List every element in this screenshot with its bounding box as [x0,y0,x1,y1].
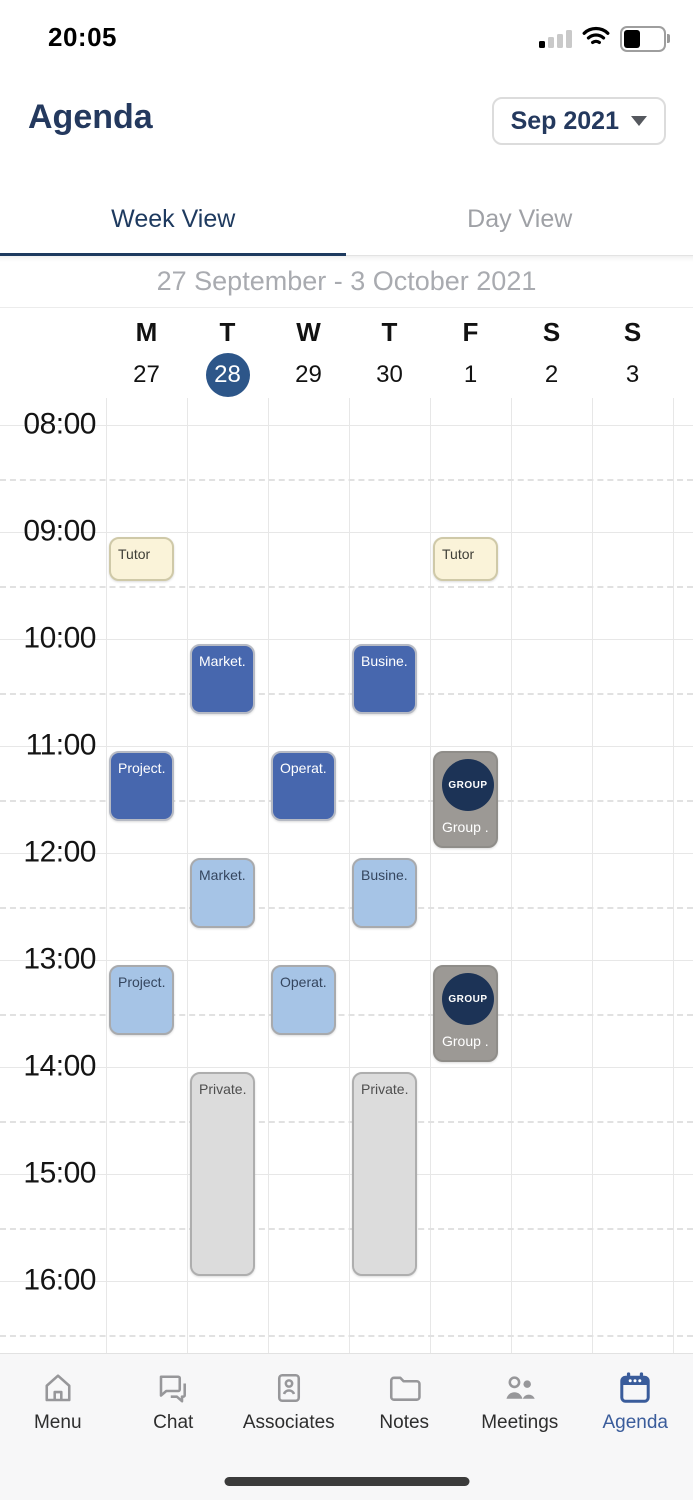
grid-vertical-line [592,398,593,1353]
grid-vertical-line [349,398,350,1353]
nav-label: Meetings [481,1412,558,1434]
grid-hour-line [0,532,693,533]
grid-hour-line [0,960,693,961]
event-label: Operat... [280,760,327,777]
day-letter: W [268,315,349,349]
day-letter: S [592,315,673,349]
event-label: Busine... [361,867,408,884]
battery-icon [620,26,666,52]
event-label: Market... [199,867,246,884]
day-column-header[interactable]: F1 [430,307,511,398]
nav-item-notes[interactable]: Notes [347,1354,463,1435]
day-letter: M [106,315,187,349]
page-title: Agenda [28,98,153,137]
time-label: 15:00 [0,1156,96,1190]
event-label: Tutor [118,546,165,563]
status-bar: 20:05 [0,0,693,60]
nav-label: Agenda [602,1412,668,1434]
grid-halfhour-line [0,693,693,695]
folder-icon [386,1370,422,1406]
event-card[interactable]: GROUPGroup ... [433,965,498,1062]
nav-item-associates[interactable]: Associates [231,1354,347,1435]
day-column-header[interactable]: S2 [511,307,592,398]
day-date: 30 [368,353,412,397]
grid-halfhour-line [0,479,693,481]
tab-week-view[interactable]: Week View [0,186,347,255]
grid-hour-line [0,639,693,640]
nav-item-meetings[interactable]: Meetings [462,1354,578,1435]
nav-label: Associates [243,1412,335,1434]
nav-item-menu[interactable]: Menu [0,1354,116,1435]
event-label: Private... [361,1081,408,1098]
chat-icon [155,1370,191,1406]
grid-halfhour-line [0,586,693,588]
day-letter: T [349,315,430,349]
grid-vertical-line [268,398,269,1353]
event-label: Operat... [280,974,327,991]
grid-vertical-line [187,398,188,1353]
home-icon [40,1370,76,1406]
status-icons [539,26,666,52]
day-letter: S [511,315,592,349]
day-column-header[interactable]: T30 [349,307,430,398]
grid-halfhour-line [0,1228,693,1230]
event-label: Private... [199,1081,246,1098]
tab-day-view[interactable]: Day View [347,186,693,255]
event-label: Project... [118,974,165,991]
nav-item-chat[interactable]: Chat [116,1354,232,1435]
time-label: 08:00 [0,407,96,441]
day-column-header[interactable]: T28 [187,307,268,398]
event-card[interactable]: Project... [109,751,174,821]
group-badge-icon: GROUP [442,759,494,811]
event-card[interactable]: Tutor [109,537,174,581]
grid-hour-line [0,1067,693,1068]
week-range-label: 27 September - 3 October 2021 [0,256,693,308]
event-card[interactable]: Private... [190,1072,255,1276]
grid-hour-line [0,1174,693,1175]
grid-hour-line [0,1281,693,1282]
event-label: Group ... [442,1033,489,1050]
grid-hour-line [0,425,693,426]
day-date: 2 [530,353,574,397]
grid-halfhour-line [0,1335,693,1337]
day-date: 27 [125,353,169,397]
month-selector-button[interactable]: Sep 2021 [492,97,666,145]
event-card[interactable]: Tutor [433,537,498,581]
day-header: M27T28W29T30F1S2S3 [0,307,693,398]
nav-label: Chat [153,1412,193,1434]
nav-label: Notes [379,1412,429,1434]
grid-vertical-line [673,398,674,1353]
day-date: 1 [449,353,493,397]
chevron-down-icon [631,116,647,126]
calendar-grid[interactable]: 08:0009:0010:0011:0012:0013:0014:0015:00… [0,398,693,1353]
grid-halfhour-line [0,800,693,802]
event-label: Market... [199,653,246,670]
event-card[interactable]: Market... [190,858,255,928]
event-card[interactable]: Market... [190,644,255,714]
people-icon [502,1370,538,1406]
event-label: Busine... [361,653,408,670]
grid-halfhour-line [0,1014,693,1016]
event-card[interactable]: Busine... [352,858,417,928]
day-column-header[interactable]: W29 [268,307,349,398]
event-label: Tutor [442,546,489,563]
grid-vertical-line [106,398,107,1353]
grid-halfhour-line [0,1121,693,1123]
time-label: 13:00 [0,942,96,976]
wifi-icon [582,26,610,52]
event-card[interactable]: Operat... [271,751,336,821]
event-label: Group ... [442,819,489,836]
day-column-header[interactable]: S3 [592,307,673,398]
time-label: 14:00 [0,1049,96,1083]
day-column-header[interactable]: M27 [106,307,187,398]
home-indicator[interactable] [224,1477,469,1486]
status-time: 20:05 [48,22,117,53]
group-badge-icon: GROUP [442,973,494,1025]
day-date: 3 [611,353,655,397]
event-label: Project... [118,760,165,777]
grid-hour-line [0,853,693,854]
signal-icon [539,30,572,48]
contact-card-icon [271,1370,307,1406]
nav-label: Menu [34,1412,82,1434]
event-card[interactable]: GROUPGroup ... [433,751,498,848]
time-label: 10:00 [0,621,96,655]
month-selector-label: Sep 2021 [511,107,619,136]
event-card[interactable]: Project... [109,965,174,1035]
grid-vertical-line [430,398,431,1353]
calendar-icon [617,1370,653,1406]
nav-item-agenda[interactable]: Agenda [578,1354,693,1435]
grid-halfhour-line [0,907,693,909]
grid-hour-line [0,746,693,747]
app-screen: 20:05 Agenda Sep 2021 Week View Day View… [0,0,693,1500]
day-letter: F [430,315,511,349]
time-label: 09:00 [0,514,96,548]
event-card[interactable]: Busine... [352,644,417,714]
grid-vertical-line [511,398,512,1353]
time-label: 11:00 [0,728,96,762]
time-label: 12:00 [0,835,96,869]
selected-day-badge: 28 [206,353,250,397]
event-card[interactable]: Private... [352,1072,417,1276]
day-date: 29 [287,353,331,397]
time-label: 16:00 [0,1263,96,1297]
day-letter: T [187,315,268,349]
view-tabs: Week View Day View [0,186,693,256]
event-card[interactable]: Operat... [271,965,336,1035]
